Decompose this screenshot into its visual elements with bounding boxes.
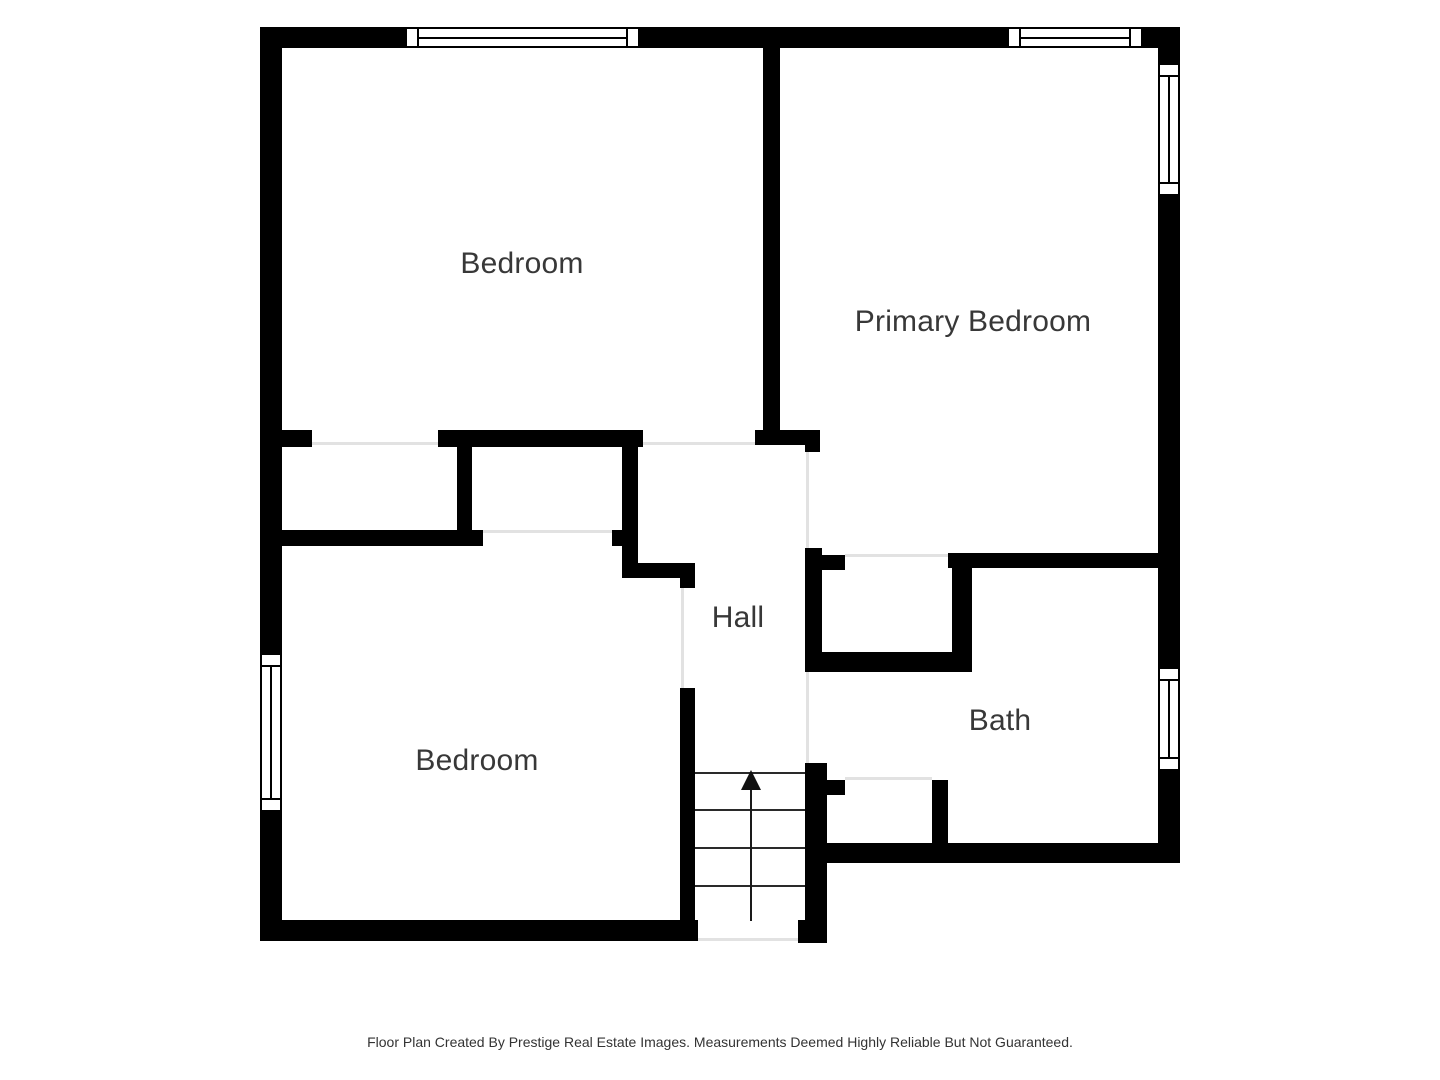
room-label-bedroom-top: Bedroom [460,247,583,281]
window-cap-line [1160,182,1178,184]
room-label-bath: Bath [969,704,1032,738]
footer-disclaimer: Floor Plan Created By Prestige Real Esta… [0,1034,1440,1050]
wall [282,430,312,447]
door-opening [483,530,612,533]
wall [948,553,1160,568]
wall [805,445,820,452]
window-center-line [1168,681,1170,757]
window [1158,667,1180,771]
window-cap-line [1160,757,1178,759]
window [1007,27,1143,48]
door-opening [845,777,932,780]
window-center-line [1021,37,1129,39]
room-label-hall: Hall [712,601,764,635]
door-opening [698,938,798,941]
door-opening [806,672,809,763]
wall [282,530,483,546]
window [1158,63,1180,196]
room-label-primary-bedroom: Primary Bedroom [855,305,1091,339]
wall [622,447,638,578]
window [260,653,282,812]
door-opening [806,452,809,548]
wall [763,48,780,430]
wall [260,920,698,941]
door-opening [681,588,684,688]
window [405,27,640,48]
wall [798,920,827,943]
stairs-up-arrow [750,788,752,921]
window-center-line [1168,77,1170,182]
wall [457,447,472,532]
wall [680,563,695,588]
wall [805,652,972,672]
door-opening [845,554,948,557]
wall [820,555,845,570]
stairs-up-arrow-head [741,770,761,790]
window-cap-line [262,798,280,800]
wall [932,780,948,845]
wall [438,430,643,447]
door-opening [643,442,755,445]
window-center-line [419,37,626,39]
window-cap-line [1129,29,1131,46]
room-label-bedroom-bottom: Bedroom [415,744,538,778]
wall [680,688,695,920]
window-center-line [270,667,272,798]
wall [820,780,845,795]
wall [820,843,1180,863]
floor-plan-canvas: BedroomPrimary BedroomHallBedroomBath Fl… [0,0,1440,1080]
window-cap-line [626,29,628,46]
wall [755,430,820,445]
door-opening [312,442,438,445]
